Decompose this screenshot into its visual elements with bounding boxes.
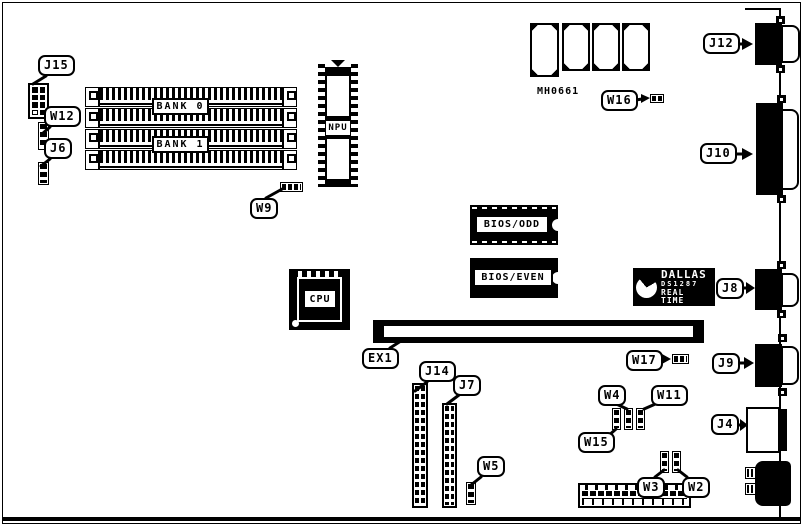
j8-screw-bottom bbox=[777, 310, 786, 318]
motherboard-layout-diagram: BANK 0 BANK 1 NPU CPU BIOS/ODD BIOS/E bbox=[0, 0, 804, 527]
pin bbox=[40, 87, 46, 93]
j9-screw-top bbox=[778, 334, 787, 342]
rtc-part: DS1287 bbox=[661, 281, 712, 288]
j12-screw-top bbox=[776, 16, 785, 24]
rtc-text: DALLAS DS1287 REAL TIME bbox=[661, 269, 712, 305]
npu-pins-left bbox=[318, 60, 325, 187]
keyboard-pins-1 bbox=[745, 467, 756, 479]
cpu-pin-ticks bbox=[298, 271, 341, 277]
callout-j12: J12 bbox=[703, 33, 740, 54]
board-bottom-edge bbox=[3, 517, 800, 521]
w15-jumper bbox=[612, 408, 621, 430]
part-number-text: MH0661 bbox=[537, 86, 579, 97]
j10-screw-top bbox=[777, 95, 786, 103]
j10-screw-bottom bbox=[777, 195, 786, 203]
connector-contacts bbox=[582, 491, 687, 496]
socket-chip-2 bbox=[562, 23, 590, 71]
w2-jumper bbox=[672, 451, 681, 473]
simm-clip-left bbox=[85, 129, 99, 149]
j4-edge-strip bbox=[779, 409, 787, 451]
j12-dshell bbox=[781, 25, 800, 63]
cpu-socket: CPU bbox=[289, 269, 350, 330]
npu-socket: NPU bbox=[318, 60, 358, 187]
bios-odd-chip: BIOS/ODD bbox=[470, 205, 558, 245]
npu-window-bottom bbox=[327, 139, 349, 179]
bios-odd-dash-top bbox=[472, 207, 556, 209]
bios-even-label: BIOS/EVEN bbox=[473, 268, 553, 287]
cpu-pin1-dot bbox=[292, 320, 299, 327]
simm-socket-4 bbox=[85, 150, 297, 170]
j8-screw-top bbox=[777, 261, 786, 269]
callout-j8: J8 bbox=[716, 278, 744, 299]
j10-dshell bbox=[781, 109, 799, 190]
simm-clip-left bbox=[85, 150, 99, 170]
callout-w5: W5 bbox=[477, 456, 505, 477]
keyboard-pins-2 bbox=[745, 483, 756, 495]
j9-dshell bbox=[781, 346, 799, 385]
j7-header bbox=[442, 403, 457, 508]
callout-w9: W9 bbox=[250, 198, 278, 219]
cpu-label: CPU bbox=[303, 289, 337, 309]
simm-clip-right bbox=[283, 129, 297, 149]
rtc-brand: DALLAS bbox=[661, 269, 712, 280]
pin bbox=[40, 102, 46, 108]
simm-clip-right bbox=[283, 87, 297, 107]
rtc-chip: DALLAS DS1287 REAL TIME bbox=[633, 268, 715, 306]
bios-odd-notch bbox=[552, 219, 558, 231]
w5-jumper bbox=[466, 482, 476, 505]
pin bbox=[32, 87, 38, 93]
callout-w12: W12 bbox=[44, 106, 81, 127]
connector-cells bbox=[582, 498, 687, 505]
clock-icon bbox=[636, 277, 657, 298]
callout-w3: W3 bbox=[637, 477, 665, 498]
pin bbox=[32, 110, 38, 116]
j14-header bbox=[412, 383, 428, 508]
j10-connector bbox=[756, 103, 783, 195]
npu-notch bbox=[325, 60, 351, 67]
npu-body: NPU bbox=[325, 60, 351, 187]
callout-w16: W16 bbox=[601, 90, 638, 111]
j6-jumper bbox=[38, 162, 49, 185]
callout-w15: W15 bbox=[578, 432, 615, 453]
callout-ex1: EX1 bbox=[362, 348, 399, 369]
simm-pins bbox=[99, 150, 283, 170]
pin bbox=[32, 102, 38, 108]
w17-jumper bbox=[672, 354, 689, 364]
w3-jumper bbox=[660, 451, 669, 473]
ex1-slot-opening bbox=[384, 326, 693, 337]
pin-column bbox=[451, 406, 455, 505]
bottom-pin-connector bbox=[578, 483, 691, 508]
j9-connector bbox=[755, 344, 782, 387]
w4-jumper bbox=[624, 408, 633, 430]
npu-window-top bbox=[327, 76, 349, 116]
simm-clip-right bbox=[283, 108, 297, 128]
board-right-edge-top bbox=[745, 8, 781, 10]
npu-pins-right bbox=[351, 60, 358, 187]
socket-chip-4 bbox=[622, 23, 650, 71]
j8-connector bbox=[755, 269, 782, 310]
ex1-slot bbox=[373, 320, 704, 343]
pin-column bbox=[445, 406, 449, 505]
bank1-label: BANK 1 bbox=[152, 136, 209, 153]
simm-clip-left bbox=[85, 87, 99, 107]
w11-jumper bbox=[636, 408, 645, 430]
callout-w2: W2 bbox=[682, 477, 710, 498]
pin-column bbox=[415, 386, 419, 505]
diagram-frame bbox=[2, 2, 801, 524]
simm-clip-left bbox=[85, 108, 99, 128]
simm-clip-right bbox=[283, 150, 297, 170]
callout-j14: J14 bbox=[419, 361, 456, 382]
j12-connector bbox=[755, 23, 782, 65]
w9-jumper bbox=[280, 182, 303, 192]
callout-j6: J6 bbox=[44, 138, 72, 159]
bios-odd-label: BIOS/ODD bbox=[475, 215, 549, 234]
pin-column bbox=[421, 386, 425, 505]
callout-w11: W11 bbox=[651, 385, 688, 406]
bank0-label: BANK 0 bbox=[152, 98, 209, 115]
pin bbox=[32, 95, 38, 101]
callout-j15: J15 bbox=[38, 55, 75, 76]
bios-even-chip: BIOS/EVEN bbox=[470, 258, 558, 298]
j4-connector bbox=[746, 407, 780, 453]
callout-w4: W4 bbox=[598, 385, 626, 406]
j8-dshell bbox=[781, 273, 799, 307]
socket-chip-3 bbox=[592, 23, 620, 71]
j9-screw-bottom bbox=[778, 388, 787, 396]
j12-screw-bottom bbox=[776, 65, 785, 73]
pin bbox=[40, 95, 46, 101]
callout-j4: J4 bbox=[711, 414, 739, 435]
socket-chip-1 bbox=[530, 23, 559, 77]
callout-w17: W17 bbox=[626, 350, 663, 371]
w16-jumper bbox=[650, 94, 664, 103]
callout-j9: J9 bbox=[712, 353, 740, 374]
bios-odd-dash-bottom bbox=[472, 241, 556, 243]
callout-j7: J7 bbox=[453, 375, 481, 396]
connector-pins bbox=[582, 485, 687, 490]
callout-j10: J10 bbox=[700, 143, 737, 164]
rtc-type: REAL TIME bbox=[661, 289, 712, 305]
npu-label: NPU bbox=[325, 120, 351, 136]
keyboard-connector bbox=[755, 461, 791, 506]
